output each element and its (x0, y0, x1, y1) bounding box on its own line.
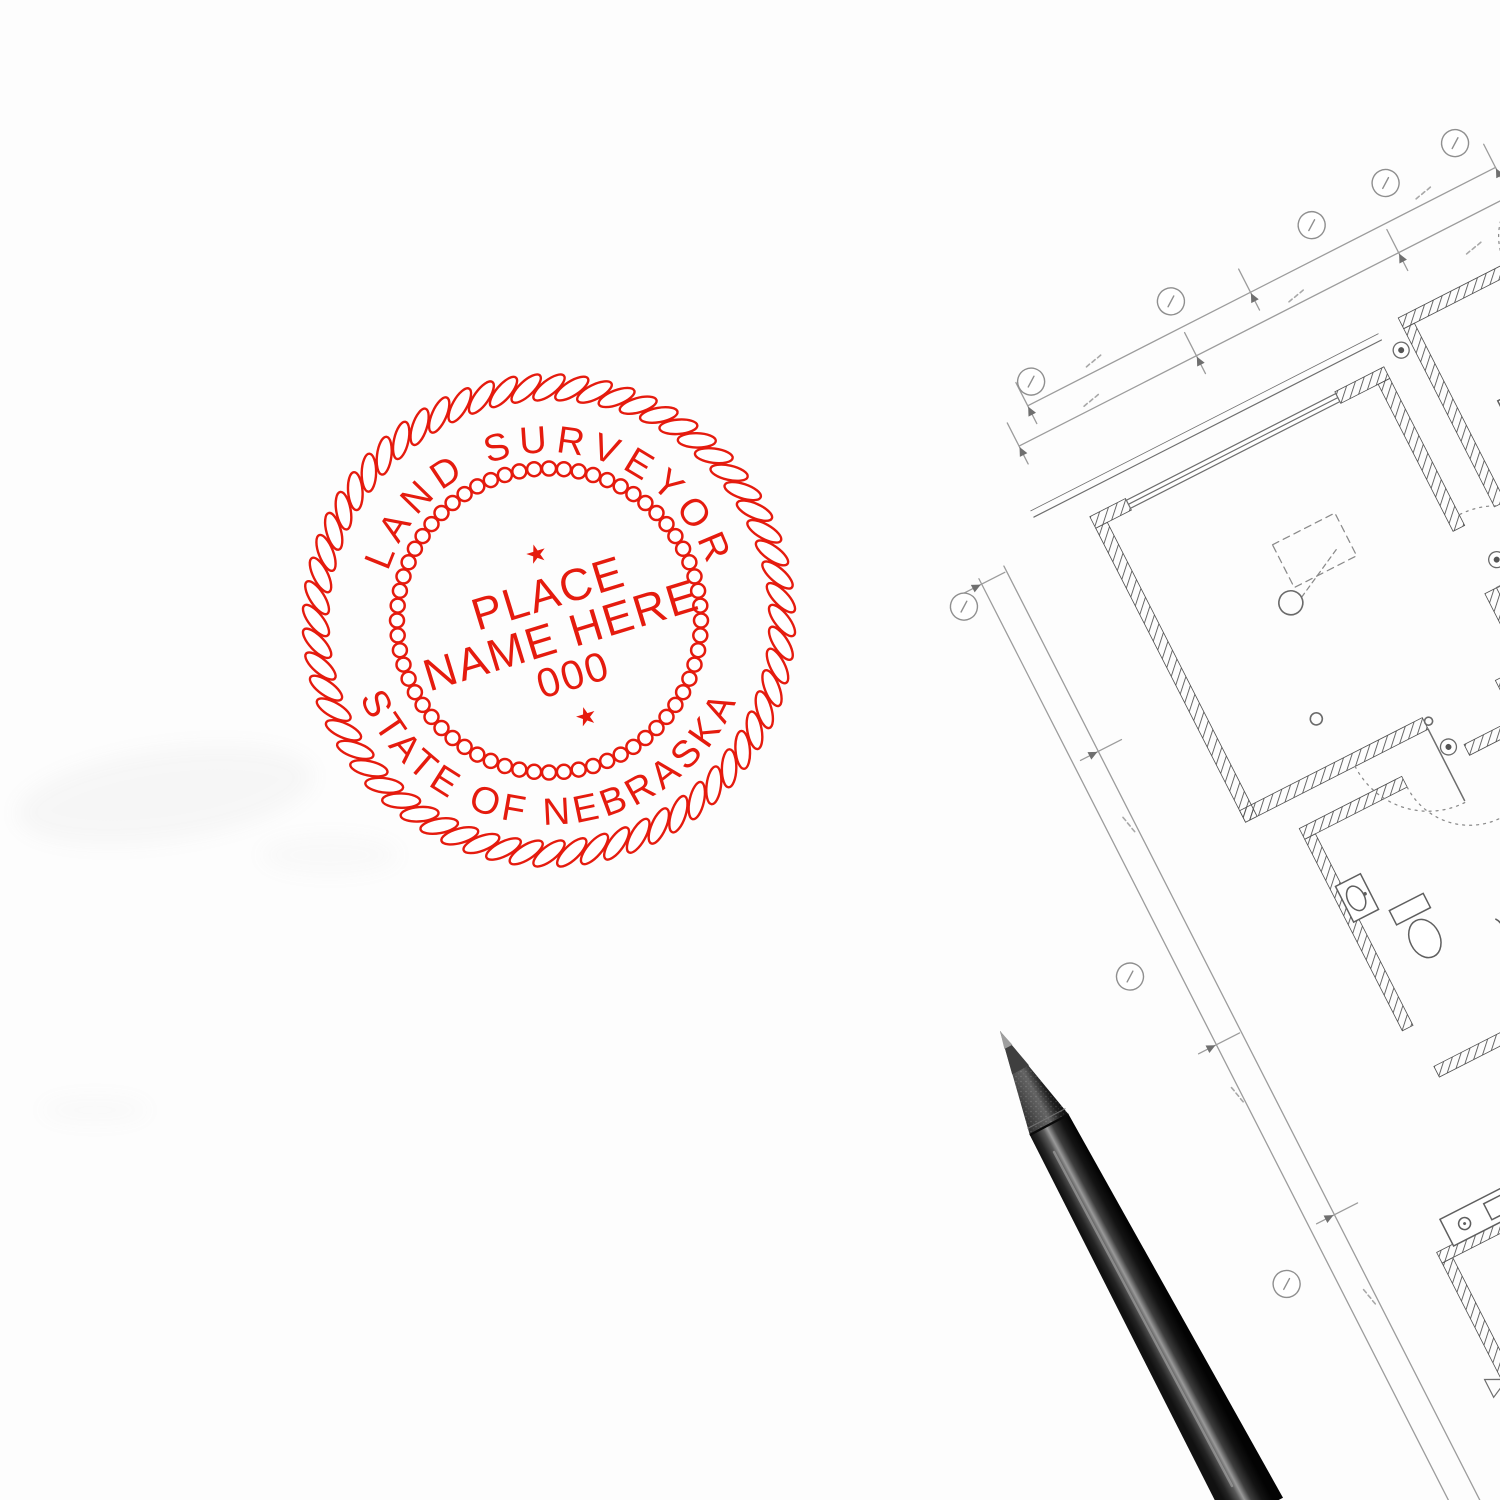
photo-scene: LAND SURVEYOR STATE OF NEBRASKA ★ PLACE … (0, 0, 1500, 1500)
scene-canvas: LAND SURVEYOR STATE OF NEBRASKA ★ PLACE … (0, 0, 1500, 1500)
